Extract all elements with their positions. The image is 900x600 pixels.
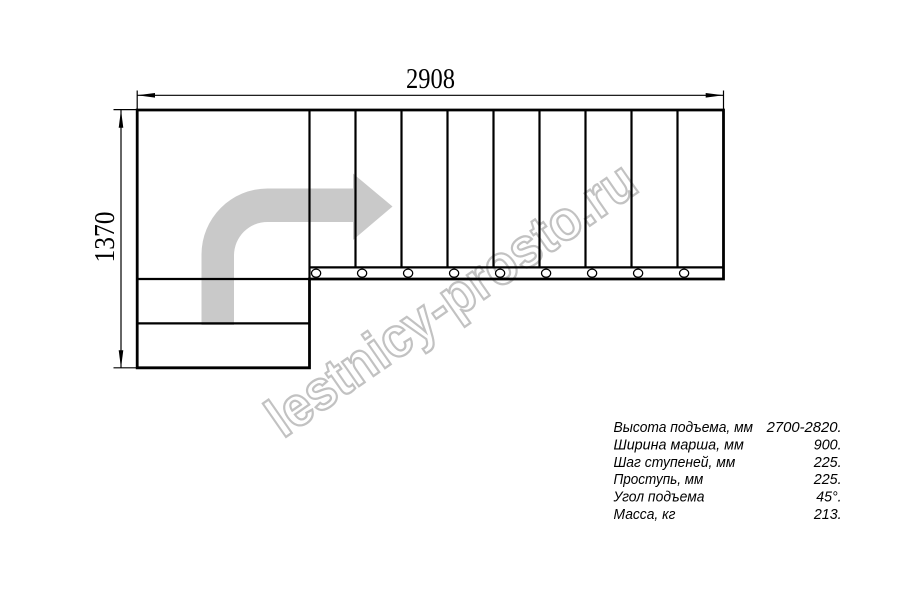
svg-text:2908: 2908 <box>406 64 455 95</box>
svg-text:1370: 1370 <box>90 212 121 263</box>
svg-text:213.: 213. <box>813 506 842 523</box>
svg-text:225.: 225. <box>813 471 842 488</box>
svg-text:Шаг ступеней, мм: Шаг ступеней, мм <box>614 454 736 471</box>
svg-text:2700-2820.: 2700-2820. <box>766 419 842 436</box>
svg-text:45°.: 45°. <box>816 489 841 506</box>
svg-text:Проступь, мм: Проступь, мм <box>614 471 704 488</box>
svg-text:Высота подъема, мм: Высота подъема, мм <box>614 419 754 436</box>
svg-text:Масса, кг: Масса, кг <box>614 506 677 523</box>
svg-text:Ширина марша, мм: Ширина марша, мм <box>614 437 744 454</box>
svg-text:225.: 225. <box>813 454 842 471</box>
svg-text:900.: 900. <box>814 437 842 454</box>
svg-text:Угол подъема: Угол подъема <box>613 489 705 506</box>
